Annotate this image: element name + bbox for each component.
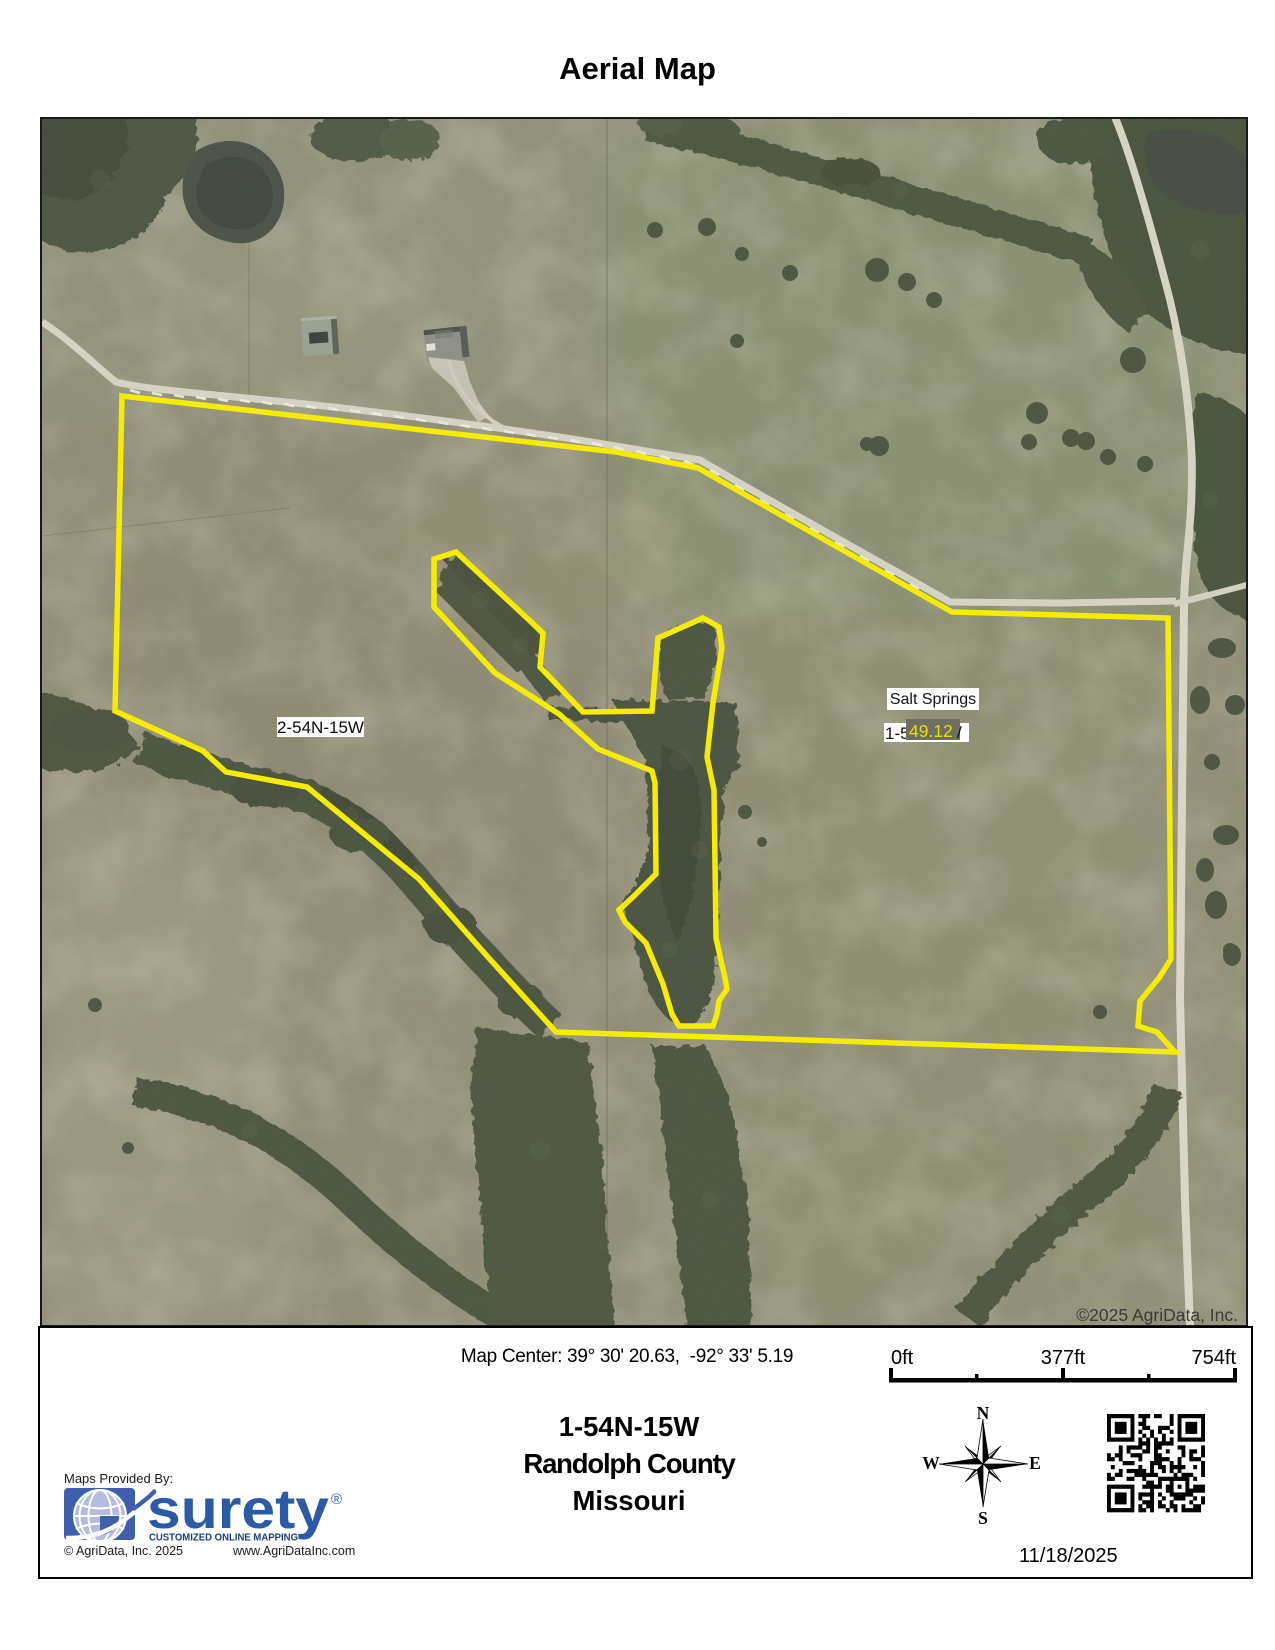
svg-text:E: E	[1029, 1453, 1041, 1473]
svg-text:W: W	[922, 1453, 940, 1473]
svg-text:S: S	[978, 1508, 988, 1528]
svg-text:N: N	[977, 1403, 990, 1423]
svg-text:1-5: 1-5	[885, 724, 910, 743]
svg-text:©2025 AgriData, Inc.: ©2025 AgriData, Inc.	[1076, 1305, 1238, 1325]
svg-text:/: /	[957, 723, 962, 742]
svg-text:CUSTOMIZED ONLINE MAPPING: CUSTOMIZED ONLINE MAPPING	[149, 1533, 298, 1544]
svg-text:2-54N-15W: 2-54N-15W	[277, 718, 364, 737]
svg-text:Salt Springs: Salt Springs	[890, 691, 976, 708]
svg-text:49.12: 49.12	[909, 721, 953, 741]
